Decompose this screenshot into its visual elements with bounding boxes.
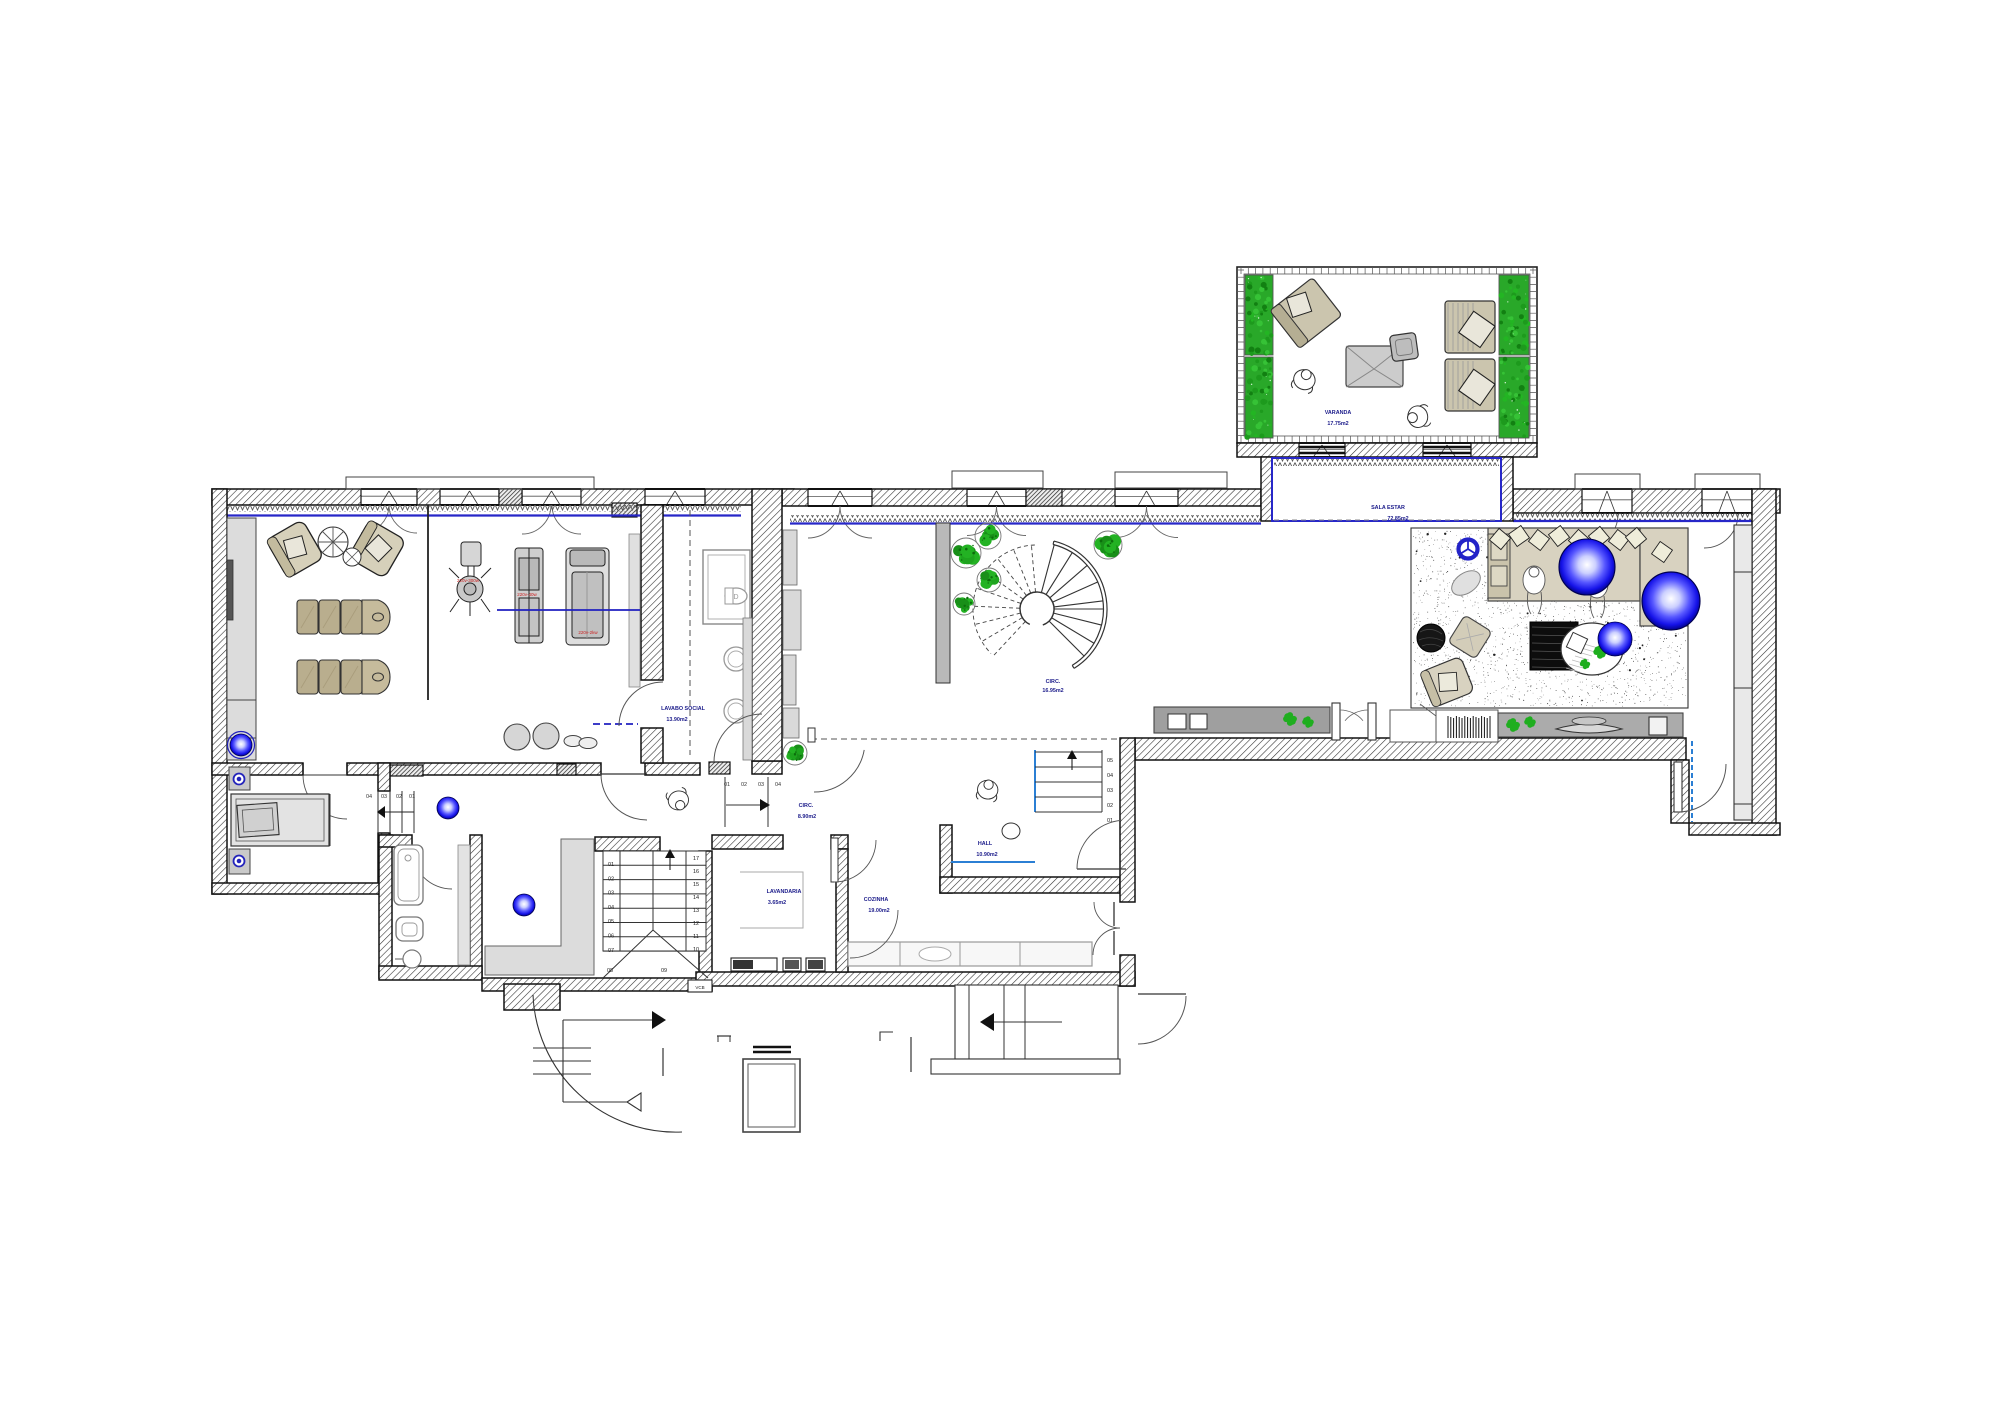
svg-text:01: 01 xyxy=(724,782,730,788)
svg-text:04: 04 xyxy=(775,782,781,788)
svg-text:220v-300w: 220v-300w xyxy=(457,578,480,583)
svg-text:12: 12 xyxy=(693,921,699,927)
svg-text:16.95m2: 16.95m2 xyxy=(1042,688,1063,694)
svg-text:HALL: HALL xyxy=(978,841,993,847)
svg-text:D: D xyxy=(733,594,738,601)
svg-text:05: 05 xyxy=(1107,758,1113,764)
svg-text:VCB: VCB xyxy=(695,985,704,990)
svg-text:03: 03 xyxy=(381,794,387,800)
svg-text:17: 17 xyxy=(693,856,699,862)
svg-text:13.90m2: 13.90m2 xyxy=(666,717,687,723)
svg-text:10.90m2: 10.90m2 xyxy=(976,852,997,858)
svg-text:220v-40w: 220v-40w xyxy=(517,592,537,597)
svg-text:CIRC.: CIRC. xyxy=(799,803,814,809)
svg-text:13: 13 xyxy=(693,908,699,914)
svg-text:01: 01 xyxy=(409,794,415,800)
svg-text:02: 02 xyxy=(396,794,402,800)
svg-text:02: 02 xyxy=(741,782,747,788)
svg-text:06: 06 xyxy=(608,934,614,940)
svg-text:17.75m2: 17.75m2 xyxy=(1327,421,1348,427)
svg-text:16: 16 xyxy=(693,869,699,875)
svg-text:01: 01 xyxy=(608,862,614,868)
svg-text:LAVANDARIA: LAVANDARIA xyxy=(767,889,802,895)
svg-text:COZINHA: COZINHA xyxy=(864,897,889,903)
svg-text:14: 14 xyxy=(693,895,699,901)
svg-text:SALA ESTAR: SALA ESTAR xyxy=(1371,505,1405,511)
svg-text:03: 03 xyxy=(1107,788,1113,794)
svg-text:04: 04 xyxy=(366,794,372,800)
svg-text:09: 09 xyxy=(661,968,667,974)
svg-text:02: 02 xyxy=(608,876,614,882)
svg-text:05: 05 xyxy=(608,919,614,925)
svg-text:03: 03 xyxy=(608,891,614,897)
svg-text:11: 11 xyxy=(693,934,699,940)
svg-text:03: 03 xyxy=(758,782,764,788)
svg-text:220v-2kw: 220v-2kw xyxy=(578,630,598,635)
svg-text:07: 07 xyxy=(608,948,614,954)
svg-text:08: 08 xyxy=(607,968,613,974)
svg-text:VARANDA: VARANDA xyxy=(1325,410,1352,416)
svg-text:LAVABO SOCIAL: LAVABO SOCIAL xyxy=(661,706,706,712)
svg-text:CIRC.: CIRC. xyxy=(1046,679,1061,685)
svg-text:3.65m2: 3.65m2 xyxy=(768,900,786,906)
svg-text:72.85m2: 72.85m2 xyxy=(1387,516,1408,522)
svg-text:19.00m2: 19.00m2 xyxy=(868,908,889,914)
svg-text:04: 04 xyxy=(608,905,614,911)
svg-text:04: 04 xyxy=(1107,773,1113,779)
svg-text:15: 15 xyxy=(693,882,699,888)
svg-text:02: 02 xyxy=(1107,803,1113,809)
svg-text:8.90m2: 8.90m2 xyxy=(798,814,816,820)
svg-text:10: 10 xyxy=(693,947,699,953)
